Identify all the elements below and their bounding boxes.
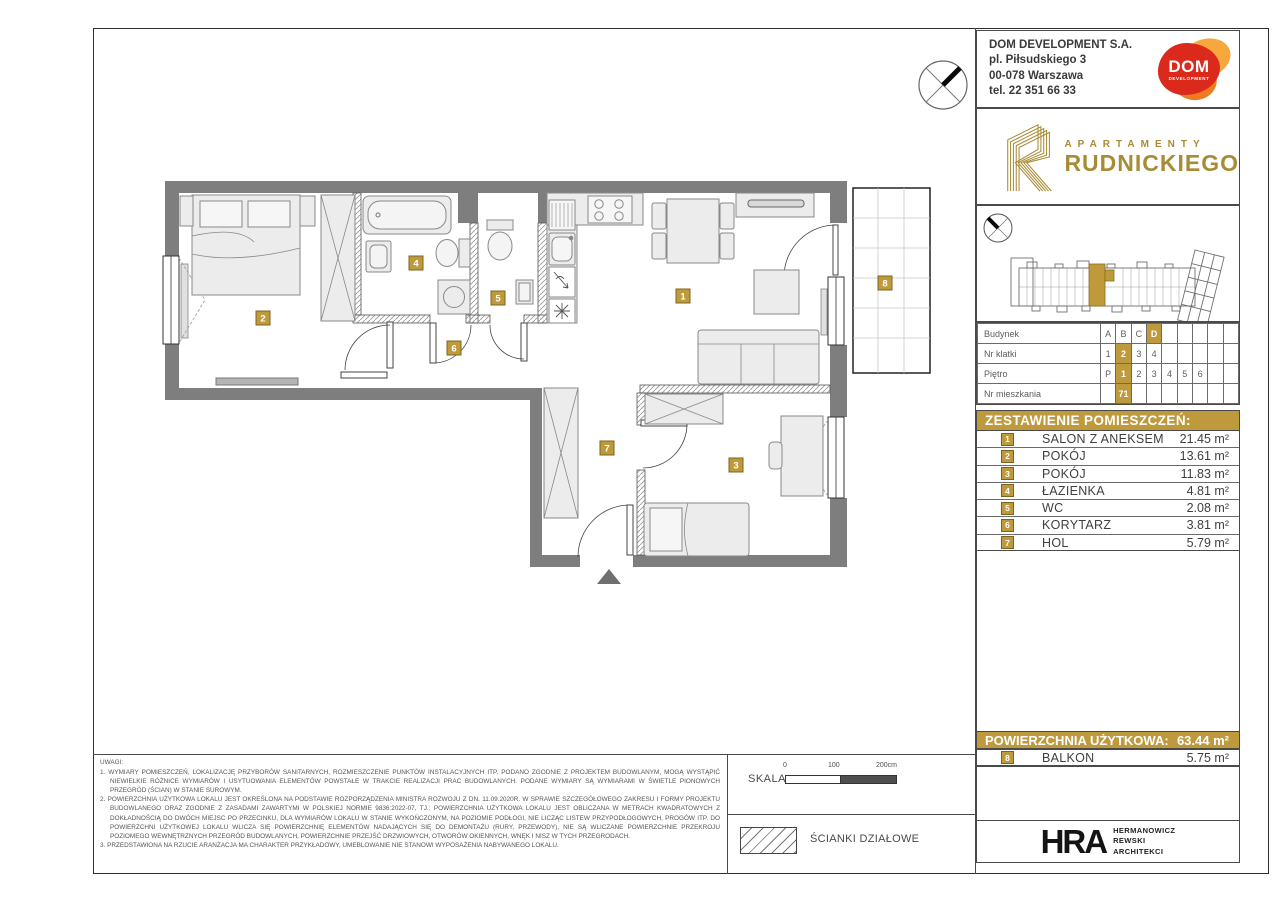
table-cell: 4	[1146, 344, 1161, 364]
room-number-badge: 5	[1001, 502, 1014, 515]
plan-label-8: 8	[882, 279, 887, 290]
table-cell: 4	[1162, 364, 1177, 384]
dom-logo-subtext: DEVELOPMENT	[1169, 76, 1210, 81]
table-cell	[1208, 364, 1223, 384]
plan-label-5: 5	[495, 294, 501, 305]
partition-legend-label: ŚCIANKI DZIAŁOWE	[810, 833, 919, 845]
entrance-arrow-icon	[597, 569, 621, 584]
room-row: 1SALON Z ANEKSEM21.45 m²	[977, 431, 1239, 448]
room-number-badge: 1	[1001, 433, 1014, 446]
empty-panel-2	[976, 766, 1240, 821]
table-row: BudynekABCD	[978, 324, 1239, 344]
table-cell	[1131, 384, 1146, 404]
plan-label-3: 3	[733, 461, 738, 472]
table-cell: 5	[1177, 364, 1192, 384]
table-cell-highlighted: 1	[1116, 364, 1131, 384]
scale-label: SKALA:	[748, 773, 790, 785]
balcony-name: BALKON	[1042, 751, 1095, 765]
room-row: 6KORYTARZ3.81 m²	[977, 517, 1239, 534]
room-area: 2.08 m²	[1187, 501, 1229, 515]
table-cell: A	[1101, 324, 1116, 344]
room-name: WC	[1042, 501, 1063, 515]
rooms-header: ZESTAWIENIE POMIESZCZEŃ:	[976, 410, 1240, 431]
site-plan-drawing	[977, 206, 1239, 321]
balcony-row: 8 BALKON 5.75 m²	[976, 749, 1240, 766]
table-cell: B	[1116, 324, 1131, 344]
room-row: 5WC2.08 m²	[977, 500, 1239, 517]
table-cell	[1177, 344, 1192, 364]
balcony-area: 5.75 m²	[1187, 751, 1229, 765]
developer-block: DOM DEVELOPMENT S.A. pl. Piłsudskiego 3 …	[976, 30, 1240, 108]
table-cell: 3	[1146, 364, 1161, 384]
plan-label-1: 1	[680, 292, 686, 303]
room-row: 3POKÓJ11.83 m²	[977, 466, 1239, 483]
developer-address-2: 00-078 Warszawa	[989, 69, 1132, 84]
table-cell	[1223, 364, 1238, 384]
plan-label-4: 4	[413, 259, 419, 270]
room-number-badge: 6	[1001, 519, 1014, 532]
room-name: POKÓJ	[1042, 467, 1086, 481]
table-cell	[1223, 324, 1238, 344]
table-cell	[1223, 344, 1238, 364]
table-cell: 6	[1192, 364, 1207, 384]
room-number-badge: 2	[1001, 450, 1014, 463]
plan-label-6: 6	[451, 344, 456, 355]
table-cell	[1192, 344, 1207, 364]
table-row: Nr klatki1234	[978, 344, 1239, 364]
room-name: KORYTARZ	[1042, 518, 1111, 532]
rooms-header-label: ZESTAWIENIE POMIESZCZEŃ:	[985, 413, 1191, 428]
architect-line-3: ARCHITEKCI	[1113, 847, 1175, 857]
table-row-label: Piętro	[978, 364, 1101, 384]
rudnickiego-logo-icon	[997, 121, 1054, 193]
project-brand-block: APARTAMENTY RUDNICKIEGO	[976, 108, 1240, 205]
table-cell-highlighted: 2	[1116, 344, 1131, 364]
architect-line-2: REWSKI	[1113, 836, 1175, 846]
brand-top: APARTAMENTY	[1064, 139, 1239, 150]
table-cell	[1208, 324, 1223, 344]
room-number-badge: 8	[1001, 751, 1014, 764]
usable-area-label: POWIERZCHNIA UŻYTKOWA:	[985, 733, 1169, 748]
table-cell-highlighted: D	[1146, 324, 1161, 344]
site-plan-block	[976, 205, 1240, 322]
developer-address-1: pl. Piłsudskiego 3	[989, 53, 1132, 68]
north-compass-icon	[919, 61, 967, 109]
architect-block: HRA HERMANOWICZ REWSKI ARCHITEKCI	[976, 820, 1240, 863]
table-cell	[1101, 384, 1116, 404]
developer-phone: tel. 22 351 66 33	[989, 84, 1132, 99]
table-cell	[1162, 344, 1177, 364]
table-cell	[1146, 384, 1161, 404]
table-cell: C	[1131, 324, 1146, 344]
developer-name: DOM DEVELOPMENT S.A.	[989, 38, 1132, 53]
scale-tick-0: 0	[783, 762, 787, 769]
room-area: 5.79 m²	[1187, 536, 1229, 550]
room-area: 11.83 m²	[1181, 467, 1229, 481]
room-area: 4.81 m²	[1187, 484, 1229, 498]
empty-panel	[976, 550, 1240, 732]
scale-bar-dark	[840, 775, 897, 784]
room-area: 13.61 m²	[1180, 449, 1229, 463]
notes-block: UWAGI: 1. WYMIARY POMIESZCZEŃ, LOKALIZAC…	[100, 758, 720, 851]
table-cell	[1192, 324, 1207, 344]
table-cell	[1177, 384, 1192, 404]
room-name: SALON Z ANEKSEM	[1042, 432, 1164, 446]
usable-area-value: 63.44 m²	[1177, 733, 1229, 748]
table-row: Nr mieszkania71	[978, 384, 1239, 404]
table-cell	[1208, 344, 1223, 364]
room-row: 2POKÓJ13.61 m²	[977, 448, 1239, 465]
hra-logo: HRA	[1041, 825, 1107, 858]
room-name: ŁAZIENKA	[1042, 484, 1105, 498]
room-number-badge: 4	[1001, 484, 1014, 497]
table-cell-highlighted: 71	[1116, 384, 1131, 404]
site-compass-icon	[984, 214, 1012, 242]
dom-development-logo: DOM DEVELOPMENT	[1155, 38, 1231, 100]
plan-label-2: 2	[260, 314, 265, 325]
table-cell: 2	[1131, 364, 1146, 384]
table-row: PiętroP123456	[978, 364, 1239, 384]
room-name: HOL	[1042, 536, 1069, 550]
usable-area-summary: POWIERZCHNIA UŻYTKOWA: 63.44 m²	[976, 731, 1240, 749]
table-cell: 3	[1131, 344, 1146, 364]
notes-divider	[93, 754, 975, 755]
table-cell: P	[1101, 364, 1116, 384]
room-area: 21.45 m²	[1180, 432, 1229, 446]
note-item: 1. WYMIARY POMIESZCZEŃ, LOKALIZACJĘ PRZY…	[100, 768, 720, 795]
furniture	[180, 193, 823, 556]
notes-title: UWAGI:	[100, 758, 720, 767]
table-cell	[1208, 384, 1223, 404]
plan-label-7: 7	[604, 444, 609, 455]
table-row-label: Budynek	[978, 324, 1101, 344]
dom-logo-text: DOM	[1168, 58, 1209, 75]
table-row-label: Nr klatki	[978, 344, 1101, 364]
brand-name: RUDNICKIEGO	[1064, 152, 1239, 175]
table-cell: 1	[1101, 344, 1116, 364]
partition-legend-swatch	[740, 827, 797, 854]
room-row: 4ŁAZIENKA4.81 m²	[977, 483, 1239, 500]
table-cell	[1162, 384, 1177, 404]
scale-bar-light	[785, 775, 842, 784]
note-item: 2. POWIERZCHNIA UŻYTKOWA LOKALU JEST OKR…	[100, 795, 720, 840]
table-cell	[1223, 384, 1238, 404]
rooms-list: 1SALON Z ANEKSEM21.45 m²2POKÓJ13.61 m²3P…	[976, 430, 1240, 551]
room-number-badge: 3	[1001, 467, 1014, 480]
table-cell	[1192, 384, 1207, 404]
architect-line-1: HERMANOWICZ	[1113, 826, 1175, 836]
table-row-label: Nr mieszkania	[978, 384, 1101, 404]
room-area: 3.81 m²	[1187, 518, 1229, 532]
highlighted-unit	[1089, 264, 1105, 306]
room-name: POKÓJ	[1042, 449, 1086, 463]
unit-location-table: BudynekABCDNr klatki1234PiętroP123456Nr …	[976, 322, 1240, 405]
room-number-badge: 7	[1001, 536, 1014, 549]
legend-divider	[727, 814, 975, 815]
note-item: 3. PRZEDSTAWIONA NA RZUCIE ARANŻACJA MA …	[100, 841, 720, 850]
table-cell	[1177, 324, 1192, 344]
table-cell	[1162, 324, 1177, 344]
floor-plan-drawing: 1 2 3 4 5 6 7 8	[93, 28, 975, 755]
scale-tick-100: 100	[828, 762, 840, 769]
scale-tick-200: 200cm	[876, 762, 897, 769]
